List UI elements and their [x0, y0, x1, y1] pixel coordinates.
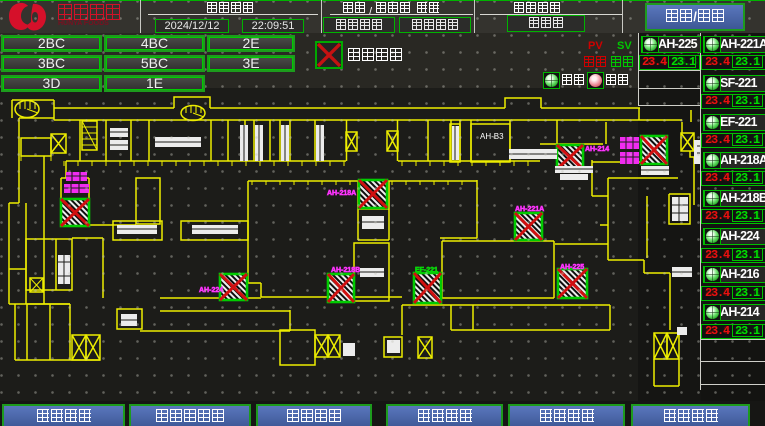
svg-text:AH-224: AH-224 [199, 287, 223, 294]
svg-text:EF-221: EF-221 [415, 267, 438, 274]
svg-text:AH-218B: AH-218B [331, 267, 360, 274]
svg-text:AH-221A: AH-221A [515, 206, 544, 213]
svg-text:AH-214: AH-214 [585, 146, 609, 153]
svg-text:AH-218A: AH-218A [327, 190, 356, 197]
svg-text:AH-225: AH-225 [560, 264, 584, 271]
svg-text:AH-B3: AH-B3 [480, 132, 504, 141]
